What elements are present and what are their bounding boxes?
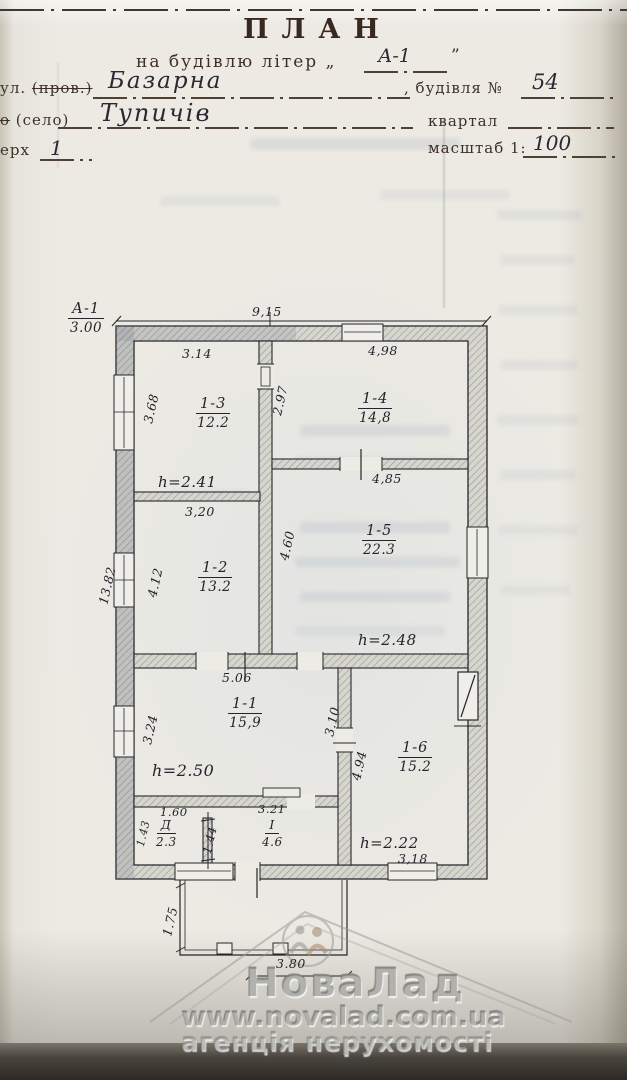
room-d-id: Д [157, 817, 176, 834]
room-1-4-area: 14,8 [359, 409, 391, 426]
room-1-3-id: 1-3 [196, 396, 230, 414]
building-no-value: 54 [532, 70, 559, 94]
room-label-1-2: 1-2 13.2 [198, 560, 232, 595]
room-label-d: Д 2.3 [156, 817, 177, 849]
dim-ri-top: 3.21 [258, 802, 286, 816]
room-1-2-area: 13.2 [199, 578, 231, 595]
dim-r16-bottom: 3,18 [398, 851, 428, 866]
room-1-1-area: 15,9 [229, 714, 261, 731]
room-1-6-area: 15.2 [399, 758, 431, 775]
room-1-4-id: 1-4 [358, 391, 392, 409]
section-mark-height: 3.00 [70, 319, 102, 336]
subtitle-close-quote: ” [451, 46, 462, 66]
room-1-1-id: 1-1 [228, 696, 262, 714]
street-label: ул. (пров.) [0, 79, 92, 97]
dim-r13-top: 3.14 [182, 346, 212, 361]
room-label-1-6: 1-6 15.2 [398, 740, 432, 775]
room-label-1-4: 1-4 14,8 [358, 391, 392, 426]
room-label-1-3: 1-3 12.2 [196, 396, 230, 431]
floor-value: 1 [50, 136, 63, 160]
room-1-5-id: 1-5 [362, 523, 396, 541]
room-d-area: 2.3 [156, 834, 177, 849]
watermark-brand: НоваЛад [245, 960, 465, 1006]
dim-r12-top: 3,20 [185, 504, 215, 519]
street-value: Базарна [108, 68, 222, 94]
dim-overall-top: 9,15 [252, 304, 282, 319]
dim-r15-height: h=2.48 [358, 631, 417, 649]
floor-label: ерх [0, 141, 30, 159]
watermark-tagline: агенція нерухомості [181, 1027, 493, 1056]
building-no-label: , будівля № [404, 79, 503, 97]
room-1-5-area: 22.3 [363, 541, 395, 558]
scale-label: масштаб 1: [428, 139, 527, 157]
scale-value: 100 [533, 131, 571, 155]
section-mark-letter: А-1 [68, 301, 104, 319]
dim-r13-height: h=2.41 [158, 473, 217, 491]
room-1-3-area: 12.2 [197, 414, 229, 431]
street-label-prefix: ул. [0, 79, 32, 97]
dim-r11-top: 5.06 [222, 670, 252, 685]
street-label-struck: (пров.) [32, 79, 93, 97]
settlement-label: о (село) [0, 111, 69, 129]
room-i-area: 4.6 [262, 834, 283, 849]
settlement-value: Тупичів [100, 99, 211, 127]
kvartal-label: квартал [428, 112, 498, 130]
room-label-i: I 4.6 [262, 817, 283, 849]
settlement-label-text: (село) [10, 111, 69, 129]
room-1-6-id: 1-6 [398, 740, 432, 758]
section-mark: А-1 3.00 [68, 301, 104, 336]
dim-r16-height: h=2.22 [360, 834, 419, 852]
floor-plan-drawing [0, 0, 627, 1080]
room-label-1-1: 1-1 15,9 [228, 696, 262, 731]
dim-r14-top: 4,98 [368, 343, 398, 358]
room-1-2-id: 1-2 [198, 560, 232, 578]
room-label-1-5: 1-5 22.3 [362, 523, 396, 558]
settlement-label-struck: о [0, 111, 10, 129]
building-letter-value: А-1 [378, 45, 411, 67]
room-i-id: I [265, 817, 279, 834]
dim-r15-top: 4,85 [372, 471, 402, 486]
scanned-floor-plan-page: ПЛАН на будівлю літер „ А-1 ” ул. (пров.… [0, 0, 627, 1080]
dim-r11-height: h=2.50 [152, 761, 214, 780]
page-title: ПЛАН [243, 14, 392, 45]
